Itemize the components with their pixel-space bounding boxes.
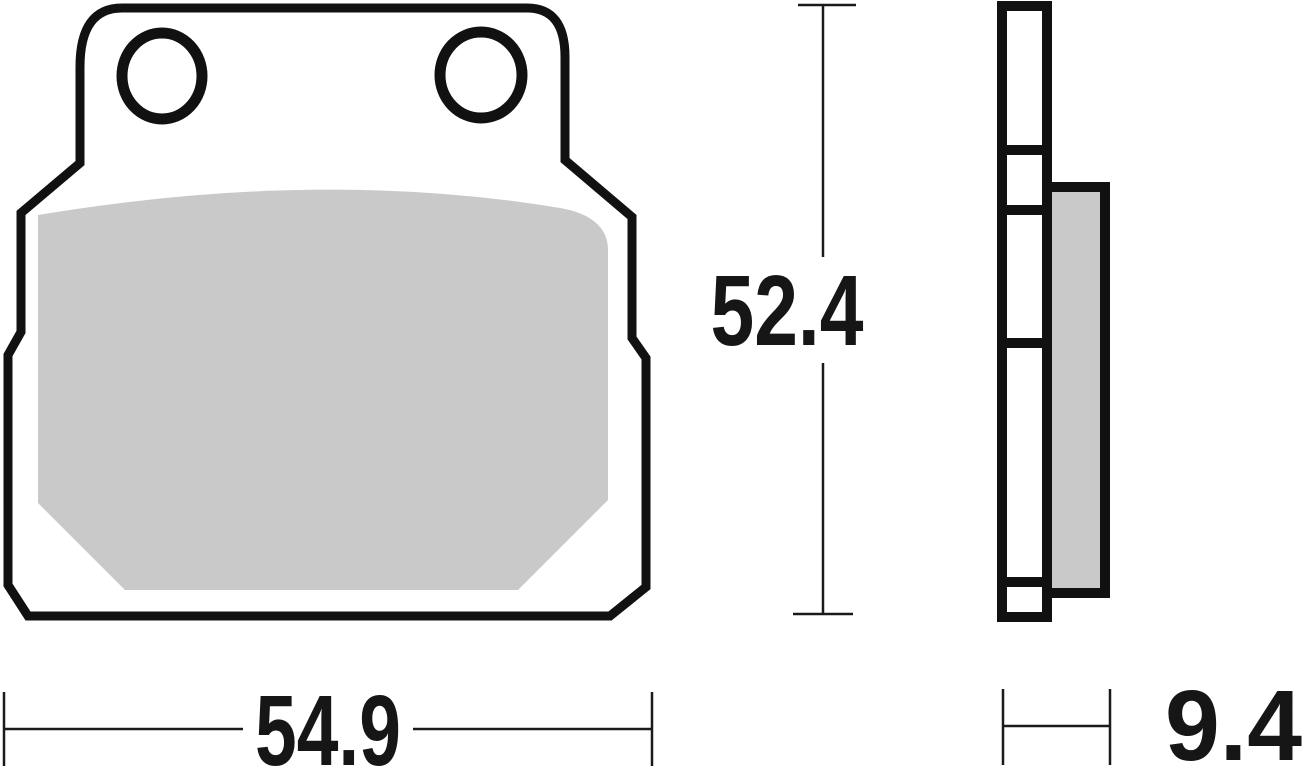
friction-material-front	[38, 190, 608, 590]
height-dimension: 52.4	[711, 5, 864, 614]
width-dimension: 54.9	[4, 675, 652, 771]
side-view	[1002, 6, 1105, 617]
width-dimension-label: 54.9	[255, 675, 401, 771]
friction-material-side	[1047, 187, 1105, 593]
front-view	[8, 8, 646, 616]
thickness-dimension: 9.4	[1003, 670, 1302, 771]
thickness-dimension-label: 9.4	[1165, 670, 1302, 771]
brake-pad-technical-drawing: 52.4 54.9 9.4	[0, 0, 1304, 771]
backing-plate-side	[1002, 6, 1047, 617]
mounting-hole-right	[440, 32, 522, 118]
drawing-svg: 52.4 54.9 9.4	[0, 0, 1304, 771]
mounting-hole-left	[122, 33, 202, 119]
height-dimension-label: 52.4	[711, 255, 864, 367]
